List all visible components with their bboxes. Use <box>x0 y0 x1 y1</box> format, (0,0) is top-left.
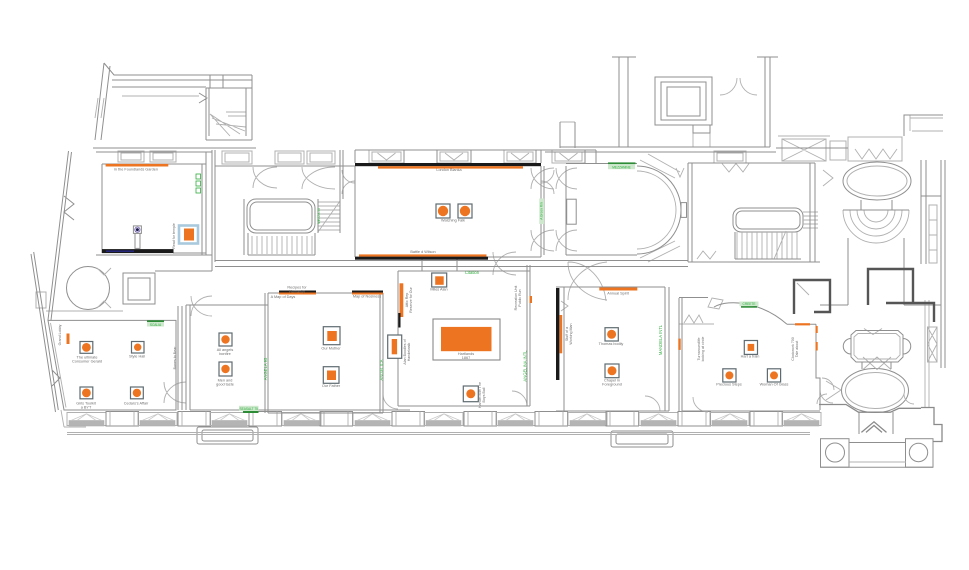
svg-text:in the Foundlands Garden: in the Foundlands Garden <box>114 168 158 172</box>
svg-text:A Green Rm: A Green Rm <box>539 202 543 220</box>
svg-text:Bones to Bear: Bones to Bear <box>173 346 177 370</box>
svg-text:Miles Alan: Miles Alan <box>430 288 447 292</box>
svg-text:Cedars's Affair: Cedars's Affair <box>124 402 149 406</box>
svg-text:Precious Steps: Precious Steps <box>716 383 742 387</box>
svg-text:SEASALT 75: SEASALT 75 <box>239 407 258 411</box>
svg-text:ANGELINA INTL: ANGELINA INTL <box>523 350 528 382</box>
svg-text:London Blanka: London Blanka <box>436 168 462 172</box>
svg-text:ANGELICA: ANGELICA <box>379 359 384 380</box>
svg-text:Public Run: Public Run <box>518 289 522 306</box>
svg-text:looking at circle: looking at circle <box>701 337 705 362</box>
svg-text:Our Father: Our Father <box>322 384 341 388</box>
svg-text:Reserve for Our: Reserve for Our <box>409 286 413 312</box>
svg-text:Map of Nosiness: Map of Nosiness <box>353 295 381 299</box>
svg-text:Annual Spirit: Annual Spirit <box>607 292 629 296</box>
svg-text:MEZZA 55: MEZZA 55 <box>317 208 321 224</box>
svg-text:Battle d Wilson: Battle d Wilson <box>410 250 435 254</box>
svg-text:Citation: Citation <box>465 270 480 275</box>
svg-text:1867: 1867 <box>462 356 470 360</box>
svg-text:Consumer Gerald: Consumer Gerald <box>72 360 102 364</box>
svg-text:MEZZANINE: MEZZANINE <box>612 165 630 169</box>
svg-text:Handelwalk: Handelwalk <box>407 343 411 362</box>
svg-text:Foreground: Foreground <box>602 383 622 387</box>
svg-text:Thomas bodily: Thomas bodily <box>599 342 624 346</box>
svg-text:bonfire: bonfire <box>219 352 231 356</box>
svg-text:ANGELA 95: ANGELA 95 <box>263 357 268 380</box>
svg-text:Woman Of Glass: Woman Of Glass <box>760 383 789 387</box>
svg-text:CREETE: CREETE <box>743 302 756 306</box>
svg-text:Hart a train: Hart a train <box>741 355 760 359</box>
svg-text:Tale about: Tale about <box>795 341 799 358</box>
svg-text:Grand Lobby: Grand Lobby <box>58 324 62 345</box>
svg-text:Style Hall: Style Hall <box>129 355 145 359</box>
svg-text:Working Man: Working Man <box>569 323 573 344</box>
svg-text:Our Mother: Our Mother <box>321 347 341 351</box>
svg-text:A Map of Days: A Map of Days <box>271 295 296 299</box>
svg-text:Humanity: Humanity <box>289 290 305 294</box>
svg-text:MANDELA INTL: MANDELA INTL <box>658 324 663 355</box>
svg-text:good taste: good taste <box>216 383 234 387</box>
svg-text:Boys Ball: Boys Ball <box>482 387 486 402</box>
svg-text:SCALIA: SCALIA <box>150 323 162 327</box>
svg-text:Read for temple: Read for temple <box>172 223 176 249</box>
svg-text:a BYT: a BYT <box>81 406 92 410</box>
svg-text:Watching Falk: Watching Falk <box>441 219 465 223</box>
